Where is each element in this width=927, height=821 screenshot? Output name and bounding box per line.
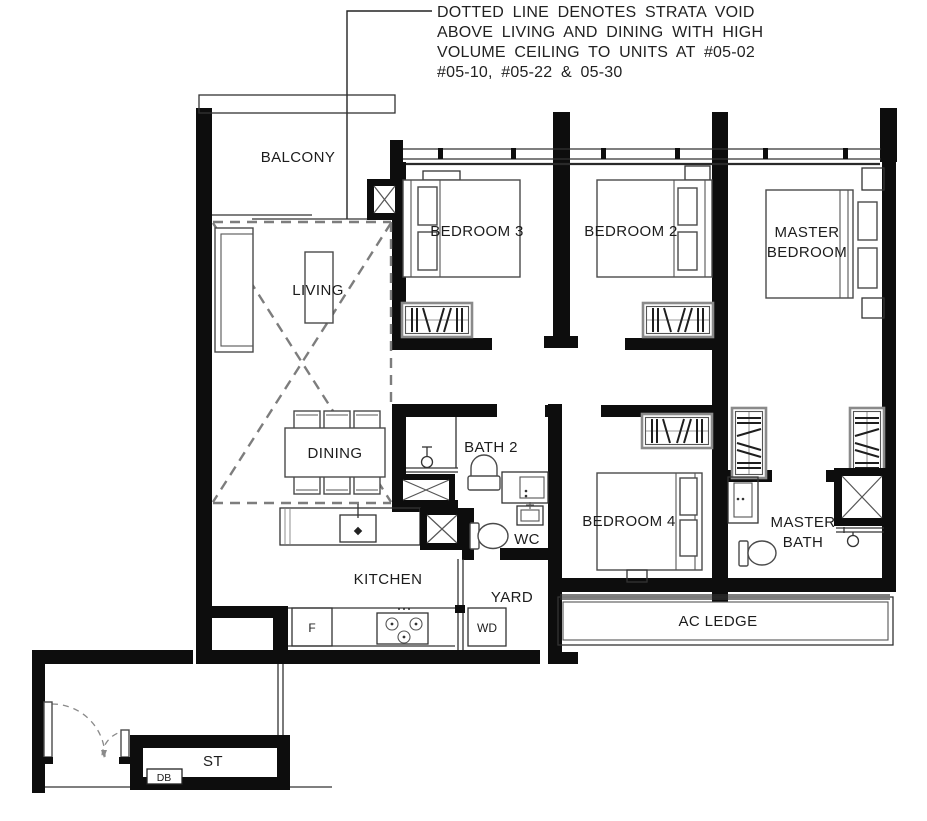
room-label-yard: YARD [491, 589, 533, 606]
wardrobe-master-left [732, 408, 766, 478]
toilet-icon-master [739, 541, 776, 566]
vanity-icon-bath2 [502, 472, 548, 503]
pillow [678, 188, 697, 225]
washer-dryer-label: WD [477, 621, 497, 635]
room-label-bath2: BATH 2 [464, 439, 518, 456]
shower-head-icon [848, 536, 859, 547]
toilet-icon-bath2 [468, 455, 500, 490]
room-label-living: LIVING [292, 282, 344, 299]
db-label: DB [157, 772, 172, 784]
bedroom3: BEDROOM 3 [402, 171, 524, 337]
pillow [858, 202, 877, 240]
room-label-store: ST [203, 753, 223, 770]
room-label-wc: WC [514, 531, 540, 548]
wardrobe-master-right [850, 408, 884, 478]
pillow [418, 187, 437, 225]
shower-master [836, 527, 884, 547]
room-label-kitchen: KITCHEN [354, 571, 423, 588]
pillow [680, 478, 697, 515]
bedroom2: BEDROOM 2 [584, 166, 713, 337]
balcony: BALCONY [199, 95, 402, 220]
annotation-line-4: #05-10, #05-22 & 05-30 [437, 64, 622, 81]
dining-area: DINING [285, 411, 385, 494]
room-label-balcony: BALCONY [261, 149, 336, 166]
master-bath: MASTER BATH [728, 408, 890, 566]
annotation-line-3: VOLUME CEILING TO UNITS AT #05-02 [437, 44, 755, 61]
room-label-bedroom2: BEDROOM 2 [584, 223, 678, 240]
hob-icon [377, 608, 428, 644]
room-label-master-bath-2: BATH [783, 534, 824, 551]
room-label-dining: DINING [308, 445, 363, 462]
toilet-icon-wc [470, 523, 508, 549]
sink-icon [340, 504, 376, 542]
shower-head-icon [422, 447, 433, 468]
shaft-bath2-lower-icon [420, 508, 464, 550]
door-leaf [121, 730, 129, 757]
ac-shaft-balcony-icon [367, 179, 402, 220]
entrance-door [42, 702, 130, 764]
room-label-bedroom4: BEDROOM 4 [582, 513, 676, 530]
entry-foyer: ST DB [32, 650, 332, 793]
shaft-master-icon [834, 468, 890, 526]
fridge-label: F [308, 621, 315, 635]
nightstand [862, 168, 884, 190]
pillow [680, 520, 697, 556]
floor-plan-page: DOTTED LINE DENOTES STRATA VOID ABOVE LI… [0, 0, 927, 821]
room-label-ac-ledge: AC LEDGE [678, 613, 757, 630]
vanity-icon-master [728, 477, 758, 523]
room-label-master-bath-1: MASTER [771, 514, 836, 531]
bedroom4: BEDROOM 4 [582, 414, 712, 582]
wardrobe-bedroom2 [643, 303, 713, 337]
annotation-line-2: ABOVE LIVING AND DINING WITH HIGH [437, 24, 763, 41]
kitchen-island [280, 508, 420, 545]
nightstand [862, 298, 884, 318]
room-label-master-bedroom-1: MASTER [775, 224, 840, 241]
door-leaf [44, 702, 52, 757]
shaft-bath2-upper-icon [397, 474, 455, 506]
yard: WD YARD [468, 589, 533, 646]
wardrobe-bedroom4 [642, 414, 712, 448]
annotation-line-1: DOTTED LINE DENOTES STRATA VOID [437, 4, 755, 21]
room-label-bedroom3: BEDROOM 3 [430, 223, 524, 240]
wc: WC [470, 502, 543, 549]
wardrobe-bedroom3 [402, 303, 472, 337]
store-room: ST DB [130, 735, 290, 790]
master-bedroom: MASTER BEDROOM [766, 168, 884, 318]
room-label-master-bedroom-2: BEDROOM [767, 244, 847, 261]
living-room: LIVING [215, 228, 344, 352]
ac-ledge: AC LEDGE [558, 597, 893, 645]
floor-plan-svg: DOTTED LINE DENOTES STRATA VOID ABOVE LI… [0, 0, 927, 821]
pillow [678, 232, 697, 270]
pillow [858, 248, 877, 288]
basin-icon-wc [517, 502, 543, 525]
